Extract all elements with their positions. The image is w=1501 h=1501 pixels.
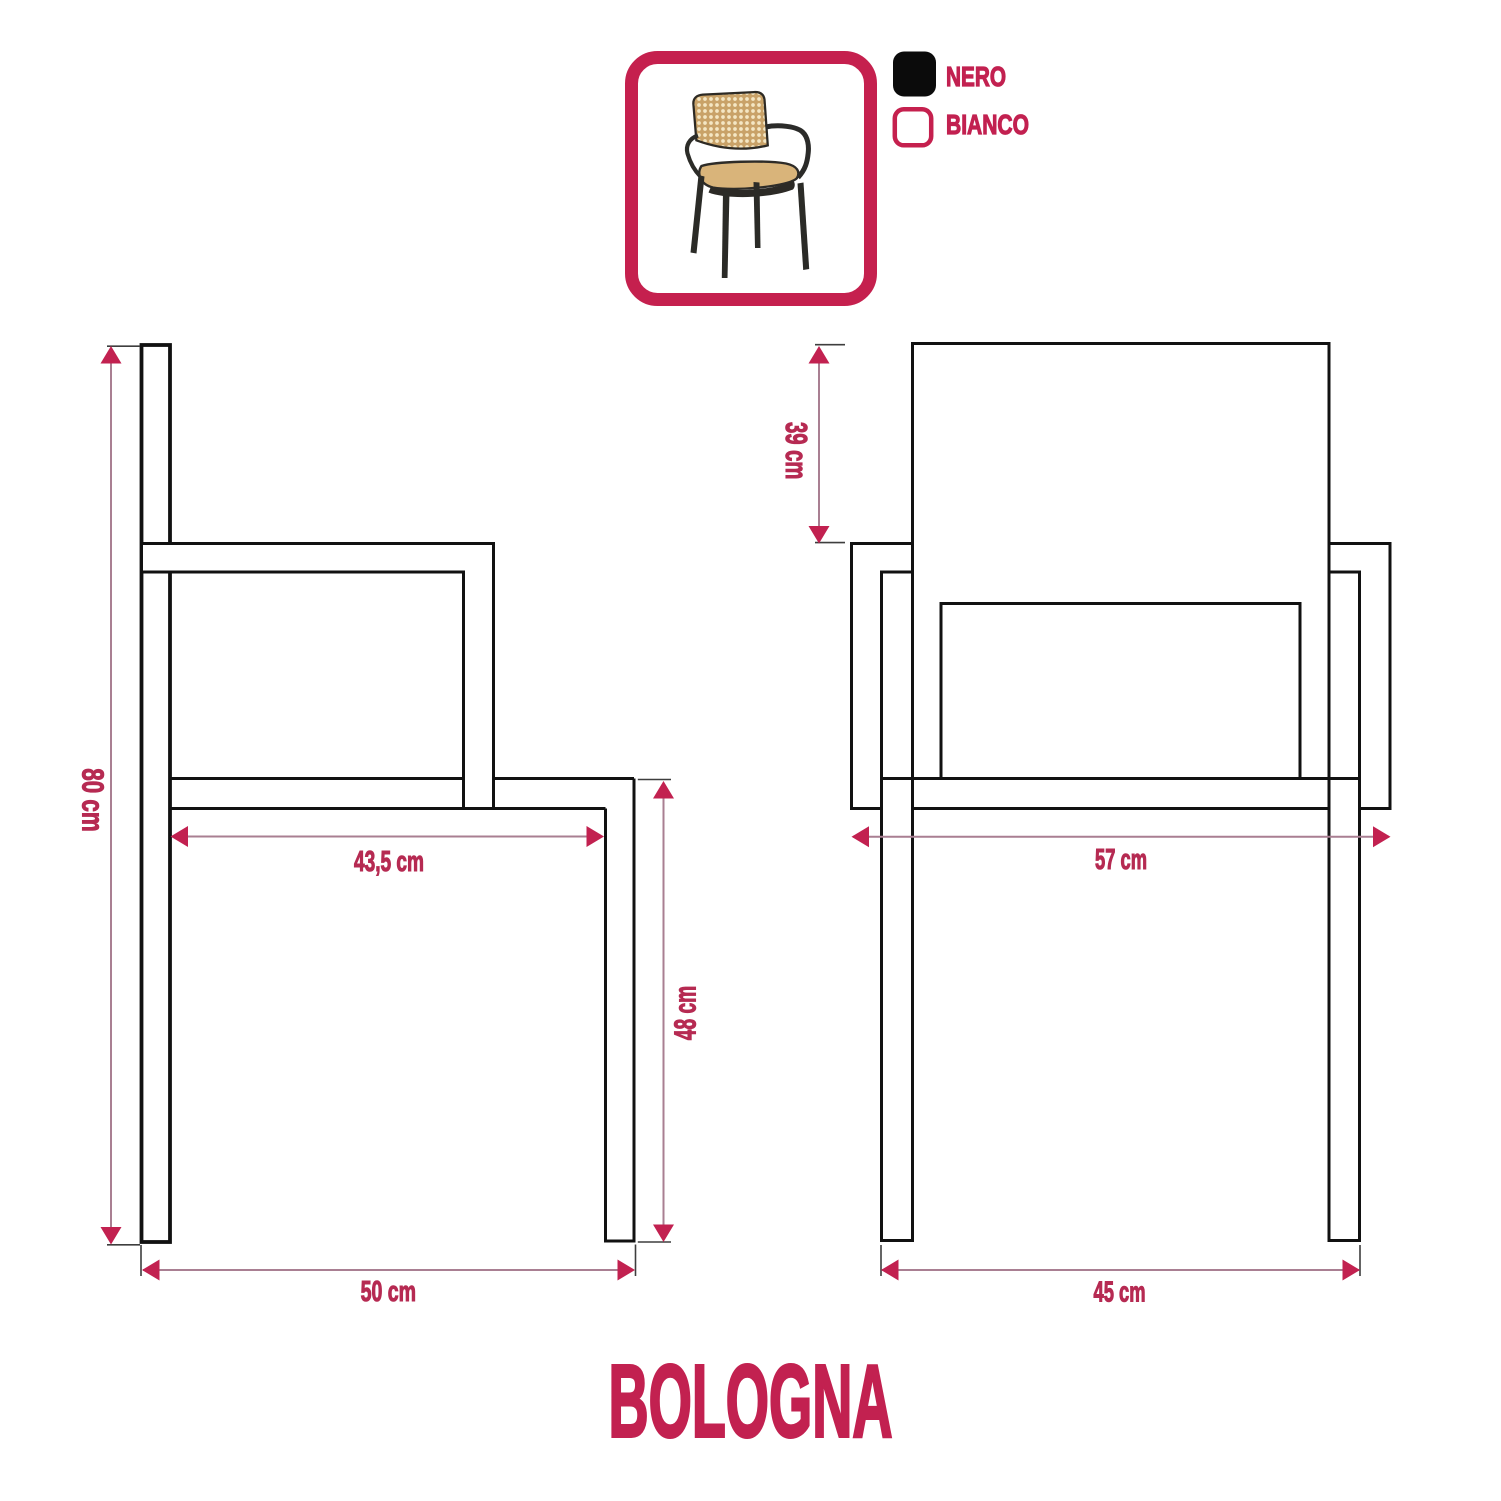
svg-text:BOLOGNA: BOLOGNA (609, 1344, 893, 1459)
svg-text:45 cm: 45 cm (1094, 1277, 1146, 1309)
svg-text:48 cm: 48 cm (668, 986, 703, 1040)
svg-text:NERO: NERO (946, 61, 1006, 92)
svg-text:80 cm: 80 cm (76, 768, 111, 832)
svg-text:BIANCO: BIANCO (946, 109, 1029, 140)
svg-text:57 cm: 57 cm (1095, 844, 1147, 876)
svg-text:50 cm: 50 cm (361, 1276, 416, 1308)
svg-text:43,5 cm: 43,5 cm (354, 846, 424, 878)
svg-text:39 cm: 39 cm (779, 422, 814, 480)
